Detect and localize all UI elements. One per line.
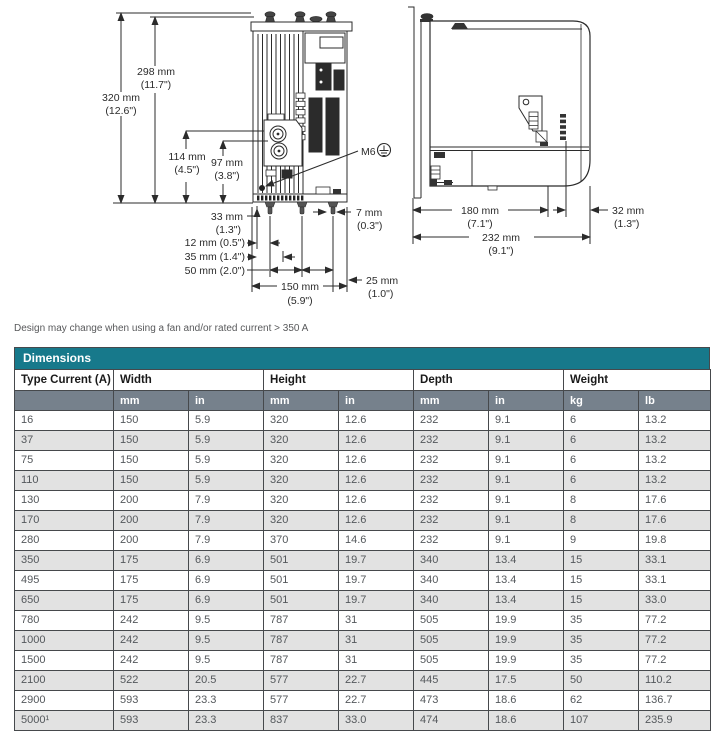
- row-value-cell: 501: [264, 591, 339, 611]
- row-value-cell: 6: [564, 471, 639, 491]
- row-current-cell: 16: [15, 411, 114, 431]
- row-value-cell: 505: [414, 631, 489, 651]
- row-current-cell: 1000: [15, 631, 114, 651]
- table-row: 6501756.950119.734013.41533.0: [15, 591, 711, 611]
- row-value-cell: 150: [114, 471, 189, 491]
- row-value-cell: 232: [414, 451, 489, 471]
- row-value-cell: 7.9: [189, 491, 264, 511]
- row-value-cell: 5.9: [189, 451, 264, 471]
- row-value-cell: 9.1: [489, 511, 564, 531]
- row-value-cell: 14.6: [339, 531, 414, 551]
- row-value-cell: 6.9: [189, 551, 264, 571]
- dim-232mm: 232 mm: [482, 232, 520, 244]
- row-value-cell: 12.6: [339, 431, 414, 451]
- row-value-cell: 175: [114, 591, 189, 611]
- col-width: Width: [114, 370, 264, 391]
- row-current-cell: 110: [15, 471, 114, 491]
- row-value-cell: 501: [264, 551, 339, 571]
- units-header-row: mm in mm in mm in kg lb: [15, 391, 711, 411]
- table-row: 1702007.932012.62329.1817.6: [15, 511, 711, 531]
- row-value-cell: 12.6: [339, 491, 414, 511]
- row-value-cell: 473: [414, 691, 489, 711]
- row-value-cell: 320: [264, 451, 339, 471]
- row-value-cell: 200: [114, 491, 189, 511]
- row-value-cell: 5.9: [189, 471, 264, 491]
- dim-232in: (9.1"): [488, 245, 513, 257]
- row-value-cell: 110.2: [639, 671, 711, 691]
- row-value-cell: 33.0: [639, 591, 711, 611]
- dim-114in: (4.5"): [174, 164, 199, 176]
- row-value-cell: 232: [414, 471, 489, 491]
- unit-weight-kg: kg: [564, 391, 639, 411]
- unit-width-mm: mm: [114, 391, 189, 411]
- row-value-cell: 9.1: [489, 431, 564, 451]
- row-value-cell: 19.9: [489, 631, 564, 651]
- row-value-cell: 9.1: [489, 471, 564, 491]
- table-body: 161505.932012.62329.1613.2371505.932012.…: [15, 411, 711, 731]
- row-value-cell: 474: [414, 711, 489, 731]
- table-row: 2802007.937014.62329.1919.8: [15, 531, 711, 551]
- row-value-cell: 33.0: [339, 711, 414, 731]
- row-value-cell: 50: [564, 671, 639, 691]
- row-value-cell: 787: [264, 631, 339, 651]
- row-value-cell: 33.1: [639, 551, 711, 571]
- row-value-cell: 5.9: [189, 411, 264, 431]
- row-value-cell: 19.9: [489, 651, 564, 671]
- row-value-cell: 23.3: [189, 711, 264, 731]
- row-value-cell: 577: [264, 671, 339, 691]
- row-value-cell: 9.1: [489, 491, 564, 511]
- row-value-cell: 9: [564, 531, 639, 551]
- dim-97in: (3.8"): [214, 170, 239, 182]
- row-value-cell: 77.2: [639, 651, 711, 671]
- dim-114mm: 114 mm: [168, 151, 205, 163]
- row-value-cell: 232: [414, 511, 489, 531]
- row-value-cell: 9.5: [189, 631, 264, 651]
- unit-depth-mm: mm: [414, 391, 489, 411]
- row-current-cell: 780: [15, 611, 114, 631]
- row-value-cell: 33.1: [639, 571, 711, 591]
- row-value-cell: 35: [564, 631, 639, 651]
- row-value-cell: 232: [414, 411, 489, 431]
- row-current-cell: 280: [15, 531, 114, 551]
- row-value-cell: 9.1: [489, 531, 564, 551]
- row-value-cell: 320: [264, 511, 339, 531]
- row-value-cell: 17.6: [639, 491, 711, 511]
- dim-97mm: 97 mm: [211, 157, 243, 169]
- row-value-cell: 77.2: [639, 631, 711, 651]
- table-row: 10002429.57873150519.93577.2: [15, 631, 711, 651]
- side-view-labels: 180 mm (7.1") 32 mm (1.3") 232 mm (9.1"): [461, 205, 644, 257]
- row-value-cell: 9.5: [189, 651, 264, 671]
- row-value-cell: 12.6: [339, 511, 414, 531]
- table-row: 161505.932012.62329.1613.2: [15, 411, 711, 431]
- row-value-cell: 5.9: [189, 431, 264, 451]
- row-value-cell: 18.6: [489, 711, 564, 731]
- row-value-cell: 8: [564, 491, 639, 511]
- row-current-cell: 650: [15, 591, 114, 611]
- row-current-cell: 5000¹: [15, 711, 114, 731]
- row-value-cell: 35: [564, 651, 639, 671]
- row-value-cell: 320: [264, 411, 339, 431]
- row-value-cell: 340: [414, 571, 489, 591]
- row-value-cell: 6: [564, 411, 639, 431]
- design-note: Design may change when using a fan and/o…: [14, 323, 723, 334]
- front-view-dimensions: [113, 13, 391, 292]
- table-row: 751505.932012.62329.1613.2: [15, 451, 711, 471]
- row-value-cell: 15: [564, 591, 639, 611]
- row-value-cell: 175: [114, 551, 189, 571]
- row-value-cell: 31: [339, 631, 414, 651]
- table-row: 1101505.932012.62329.1613.2: [15, 471, 711, 491]
- row-value-cell: 242: [114, 631, 189, 651]
- table-row: 210052220.557722.744517.550110.2: [15, 671, 711, 691]
- row-value-cell: 320: [264, 431, 339, 451]
- row-value-cell: 13.2: [639, 451, 711, 471]
- table-row: 4951756.950119.734013.41533.1: [15, 571, 711, 591]
- dim-320in: (12.6"): [105, 105, 136, 117]
- row-value-cell: 175: [114, 571, 189, 591]
- row-value-cell: 232: [414, 431, 489, 451]
- dim-12mm: 12 mm (0.5"): [185, 237, 245, 249]
- row-value-cell: 505: [414, 611, 489, 631]
- row-value-cell: 577: [264, 691, 339, 711]
- row-value-cell: 35: [564, 611, 639, 631]
- row-value-cell: 17.5: [489, 671, 564, 691]
- dim-33in: (1.3"): [216, 224, 241, 236]
- dim-180in: (7.1"): [467, 218, 492, 230]
- dim-320mm: 320 mm: [102, 92, 140, 104]
- front-view-labels: 320 mm (12.6") 298 mm (11.7") 114 mm (4.…: [102, 66, 398, 307]
- dim-7mm: 7 mm: [356, 207, 383, 219]
- row-value-cell: 242: [114, 611, 189, 631]
- row-value-cell: 320: [264, 471, 339, 491]
- row-value-cell: 787: [264, 651, 339, 671]
- row-value-cell: 593: [114, 711, 189, 731]
- dim-150mm: 150 mm: [281, 281, 319, 293]
- row-current-cell: 75: [15, 451, 114, 471]
- row-value-cell: 13.4: [489, 571, 564, 591]
- dim-298mm: 298 mm: [137, 66, 175, 78]
- row-value-cell: 9.5: [189, 611, 264, 631]
- column-group-header-row: Type Current (A) Width Height Depth Weig…: [15, 370, 711, 391]
- row-value-cell: 593: [114, 691, 189, 711]
- unit-depth-in: in: [489, 391, 564, 411]
- row-value-cell: 235.9: [639, 711, 711, 731]
- dim-7in: (0.3"): [357, 220, 382, 232]
- datasheet-page: 320 mm (12.6") 298 mm (11.7") 114 mm (4.…: [0, 0, 723, 751]
- table-row: 7802429.57873150519.93577.2: [15, 611, 711, 631]
- row-value-cell: 22.7: [339, 671, 414, 691]
- row-value-cell: 340: [414, 591, 489, 611]
- row-value-cell: 18.6: [489, 691, 564, 711]
- row-current-cell: 130: [15, 491, 114, 511]
- row-current-cell: 37: [15, 431, 114, 451]
- row-value-cell: 9.1: [489, 451, 564, 471]
- unit-height-mm: mm: [264, 391, 339, 411]
- row-value-cell: 15: [564, 571, 639, 591]
- row-value-cell: 13.2: [639, 431, 711, 451]
- dimension-drawing: 320 mm (12.6") 298 mm (11.7") 114 mm (4.…: [0, 0, 723, 312]
- row-value-cell: 22.7: [339, 691, 414, 711]
- row-value-cell: 19.8: [639, 531, 711, 551]
- dim-35mm: 35 mm (1.4"): [185, 251, 245, 263]
- row-value-cell: 23.3: [189, 691, 264, 711]
- row-value-cell: 150: [114, 431, 189, 451]
- row-value-cell: 340: [414, 551, 489, 571]
- row-value-cell: 6: [564, 451, 639, 471]
- label-m6: M6: [361, 146, 376, 158]
- dim-25mm: 25 mm: [366, 275, 398, 287]
- row-value-cell: 6: [564, 431, 639, 451]
- dim-180mm: 180 mm: [461, 205, 499, 217]
- row-value-cell: 9.1: [489, 411, 564, 431]
- row-value-cell: 12.6: [339, 411, 414, 431]
- table-row: 290059323.357722.747318.662136.7: [15, 691, 711, 711]
- row-value-cell: 232: [414, 491, 489, 511]
- row-value-cell: 107: [564, 711, 639, 731]
- row-current-cell: 2100: [15, 671, 114, 691]
- row-value-cell: 232: [414, 531, 489, 551]
- unit-empty: [15, 391, 114, 411]
- table-row: 371505.932012.62329.1613.2: [15, 431, 711, 451]
- row-value-cell: 787: [264, 611, 339, 631]
- unit-width-in: in: [189, 391, 264, 411]
- row-current-cell: 1500: [15, 651, 114, 671]
- row-value-cell: 31: [339, 611, 414, 631]
- dim-150in: (5.9"): [287, 295, 312, 307]
- row-value-cell: 837: [264, 711, 339, 731]
- dimensions-table-section: Dimensions Type Current (A) Width Height…: [14, 347, 710, 731]
- side-view-drawing: [408, 7, 590, 198]
- row-value-cell: 370: [264, 531, 339, 551]
- row-value-cell: 13.2: [639, 411, 711, 431]
- table-row: 5000¹59323.383733.047418.6107235.9: [15, 711, 711, 731]
- row-value-cell: 19.7: [339, 571, 414, 591]
- row-current-cell: 170: [15, 511, 114, 531]
- table-row: 1302007.932012.62329.1817.6: [15, 491, 711, 511]
- row-value-cell: 200: [114, 531, 189, 551]
- row-value-cell: 19.7: [339, 591, 414, 611]
- table-row: 3501756.950119.734013.41533.1: [15, 551, 711, 571]
- row-value-cell: 522: [114, 671, 189, 691]
- unit-height-in: in: [339, 391, 414, 411]
- row-value-cell: 15: [564, 551, 639, 571]
- row-current-cell: 2900: [15, 691, 114, 711]
- dim-32mm: 32 mm: [612, 205, 644, 217]
- unit-weight-lb: lb: [639, 391, 711, 411]
- table-row: 15002429.57873150519.93577.2: [15, 651, 711, 671]
- dim-298in: (11.7"): [141, 79, 171, 91]
- row-value-cell: 6.9: [189, 571, 264, 591]
- row-value-cell: 17.6: [639, 511, 711, 531]
- row-value-cell: 320: [264, 491, 339, 511]
- row-value-cell: 20.5: [189, 671, 264, 691]
- col-weight: Weight: [564, 370, 711, 391]
- row-value-cell: 13.4: [489, 551, 564, 571]
- row-value-cell: 12.6: [339, 451, 414, 471]
- row-value-cell: 7.9: [189, 531, 264, 551]
- row-value-cell: 12.6: [339, 471, 414, 491]
- row-value-cell: 19.9: [489, 611, 564, 631]
- row-value-cell: 77.2: [639, 611, 711, 631]
- col-depth: Depth: [414, 370, 564, 391]
- row-value-cell: 62: [564, 691, 639, 711]
- row-current-cell: 350: [15, 551, 114, 571]
- row-value-cell: 445: [414, 671, 489, 691]
- row-value-cell: 13.4: [489, 591, 564, 611]
- col-type-current: Type Current (A): [15, 370, 114, 391]
- row-value-cell: 150: [114, 451, 189, 471]
- row-value-cell: 242: [114, 651, 189, 671]
- row-value-cell: 505: [414, 651, 489, 671]
- dimensions-table: Type Current (A) Width Height Depth Weig…: [14, 369, 711, 731]
- row-value-cell: 501: [264, 571, 339, 591]
- row-value-cell: 7.9: [189, 511, 264, 531]
- row-value-cell: 200: [114, 511, 189, 531]
- row-value-cell: 136.7: [639, 691, 711, 711]
- dim-50mm: 50 mm (2.0"): [185, 265, 245, 277]
- row-value-cell: 19.7: [339, 551, 414, 571]
- row-value-cell: 6.9: [189, 591, 264, 611]
- col-height: Height: [264, 370, 414, 391]
- row-value-cell: 8: [564, 511, 639, 531]
- table-title: Dimensions: [14, 347, 710, 369]
- front-view-drawing: [251, 12, 352, 214]
- dim-33mm: 33 mm: [211, 211, 243, 223]
- dim-25in: (1.0"): [368, 288, 393, 300]
- dim-32in: (1.3"): [614, 218, 639, 230]
- row-value-cell: 31: [339, 651, 414, 671]
- row-current-cell: 495: [15, 571, 114, 591]
- row-value-cell: 13.2: [639, 471, 711, 491]
- row-value-cell: 150: [114, 411, 189, 431]
